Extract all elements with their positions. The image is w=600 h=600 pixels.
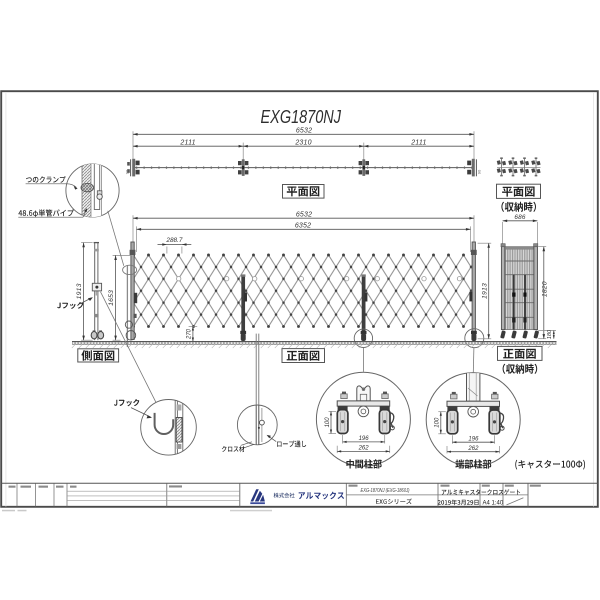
svg-text:262: 262	[358, 446, 370, 452]
svg-text:EXG-1870NJ (EXG-1860J): EXG-1870NJ (EXG-1860J)	[361, 488, 410, 494]
svg-text:196: 196	[359, 436, 370, 442]
svg-text:288.7: 288.7	[165, 237, 182, 244]
svg-text:EXG1870NJ: EXG1870NJ	[261, 106, 342, 127]
svg-text:6532: 6532	[296, 127, 312, 134]
svg-text:2111: 2111	[410, 140, 426, 147]
svg-text:180: 180	[547, 329, 553, 339]
svg-text:1653: 1653	[108, 290, 115, 306]
svg-text:2111: 2111	[179, 140, 195, 147]
svg-text:1913: 1913	[481, 283, 488, 299]
svg-text:1820: 1820	[541, 281, 548, 297]
svg-text:270: 270	[187, 328, 193, 340]
svg-text:1913: 1913	[76, 283, 83, 299]
svg-text:A4 1:40: A4 1:40	[483, 501, 504, 507]
svg-text:686: 686	[514, 214, 526, 221]
svg-text:100: 100	[325, 417, 331, 428]
svg-text:6532: 6532	[296, 211, 312, 218]
svg-text:6352: 6352	[295, 222, 311, 229]
svg-text:262: 262	[467, 446, 479, 452]
svg-text:90: 90	[124, 169, 129, 174]
svg-text:2310: 2310	[294, 140, 311, 147]
svg-text:100: 100	[435, 417, 441, 428]
svg-text:196: 196	[468, 436, 479, 442]
svg-text:90: 90	[477, 169, 482, 174]
